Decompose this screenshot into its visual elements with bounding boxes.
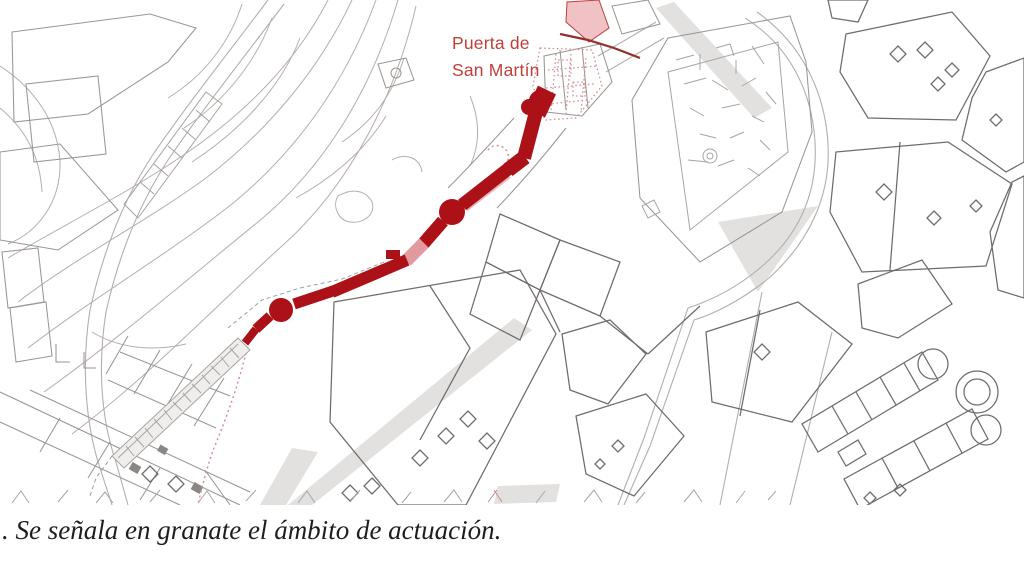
contour-lines <box>0 0 478 434</box>
caption-band: . Se señala en granate el ámbito de actu… <box>0 505 1024 576</box>
map-canvas <box>0 0 1024 576</box>
wall-pink-segment <box>406 243 424 261</box>
tower-outline-dashed <box>488 146 508 164</box>
figure: Puerta de San Martín . Se señala en gran… <box>0 0 1024 576</box>
figure-caption: . Se señala en granate el ámbito de actu… <box>2 514 501 546</box>
gate-label: Puerta de San Martín <box>452 30 540 84</box>
right-blocks <box>706 0 1024 422</box>
church-plans <box>802 349 1001 509</box>
wall-tower-2 <box>269 298 293 322</box>
